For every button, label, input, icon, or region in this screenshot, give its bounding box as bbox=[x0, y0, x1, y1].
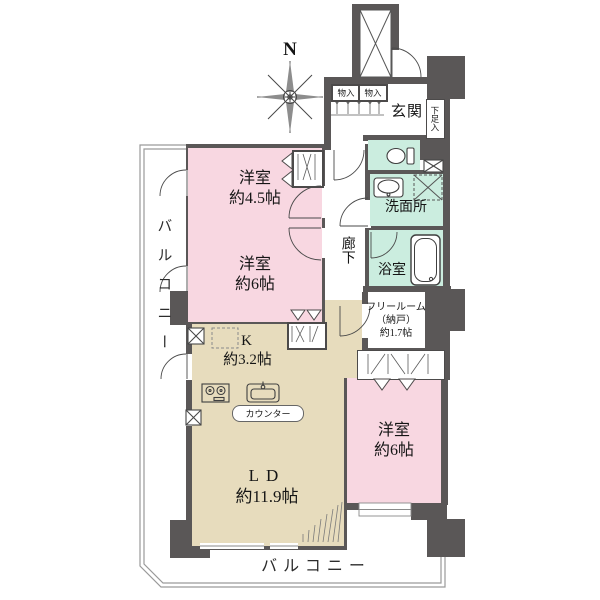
room-name: 洋室 bbox=[239, 169, 271, 189]
compass-icon bbox=[257, 61, 323, 133]
corridor-label: 廊下 bbox=[338, 226, 356, 274]
balcony-text: バルコニー bbox=[154, 218, 173, 363]
shaft-icon bbox=[360, 10, 391, 77]
room-size: 約11.9帖 bbox=[235, 486, 298, 507]
washbasin-icon bbox=[374, 178, 403, 197]
balcony-bottom-label: バルコニー bbox=[230, 556, 402, 578]
kitchen-sink-icon bbox=[247, 382, 279, 403]
room-name2: （納戸） bbox=[376, 314, 416, 327]
bedroom3-label: 洋室 約6帖 bbox=[347, 410, 441, 472]
kitchen-label: K 約3.2帖 bbox=[190, 328, 305, 374]
room-name: 浴室 bbox=[378, 262, 406, 280]
free-room-label: フリールーム （納戸） 約1.7帖 bbox=[365, 294, 427, 346]
room-name: K bbox=[241, 332, 254, 351]
shoe-cupboard-label: 下足入 bbox=[427, 101, 442, 136]
room-size: 約3.2帖 bbox=[223, 351, 272, 370]
north-letter: N bbox=[283, 38, 297, 62]
storage-box-left: 物入 bbox=[331, 84, 361, 102]
room-name: LD bbox=[249, 465, 286, 486]
room-name: 洋室 bbox=[378, 421, 410, 441]
room-size: 約6帖 bbox=[374, 441, 414, 461]
balcony-left-label: バルコニー bbox=[148, 165, 178, 415]
bathtub-icon bbox=[411, 235, 440, 285]
storage-left-label: 物入 bbox=[337, 88, 354, 99]
bedroom2-label: 洋室 約6帖 bbox=[188, 244, 322, 306]
north-label: N bbox=[278, 40, 302, 60]
floor-plan: 物入 物入 bbox=[0, 0, 600, 600]
living-label: LD 約11.9帖 bbox=[192, 456, 342, 516]
room-size: 約6帖 bbox=[235, 275, 275, 295]
entrance-label: 玄関 bbox=[381, 100, 433, 124]
storage-right-label: 物入 bbox=[364, 88, 381, 99]
room-name: 玄関 bbox=[391, 103, 423, 122]
toilet-icon bbox=[387, 148, 414, 164]
counter-text: カウンター bbox=[245, 407, 290, 420]
balcony-text: バルコニー bbox=[261, 557, 371, 577]
washer-pan-icon bbox=[414, 175, 442, 200]
room-name: 下足入 bbox=[429, 106, 440, 132]
room-name: 廊下 bbox=[338, 236, 356, 264]
stove-icon bbox=[202, 384, 229, 402]
room-name: 洗面所 bbox=[385, 199, 427, 217]
room-size: 約4.5帖 bbox=[229, 189, 281, 209]
washroom-label: 洗面所 bbox=[370, 199, 442, 217]
bathroom-label: 浴室 bbox=[369, 262, 415, 280]
room-name: フリールーム bbox=[366, 301, 426, 314]
counter-label: カウンター bbox=[232, 405, 304, 422]
room-name: 洋室 bbox=[239, 255, 271, 275]
room-size: 約1.7帖 bbox=[380, 327, 413, 340]
bedroom1-label: 洋室 約4.5帖 bbox=[188, 158, 322, 220]
